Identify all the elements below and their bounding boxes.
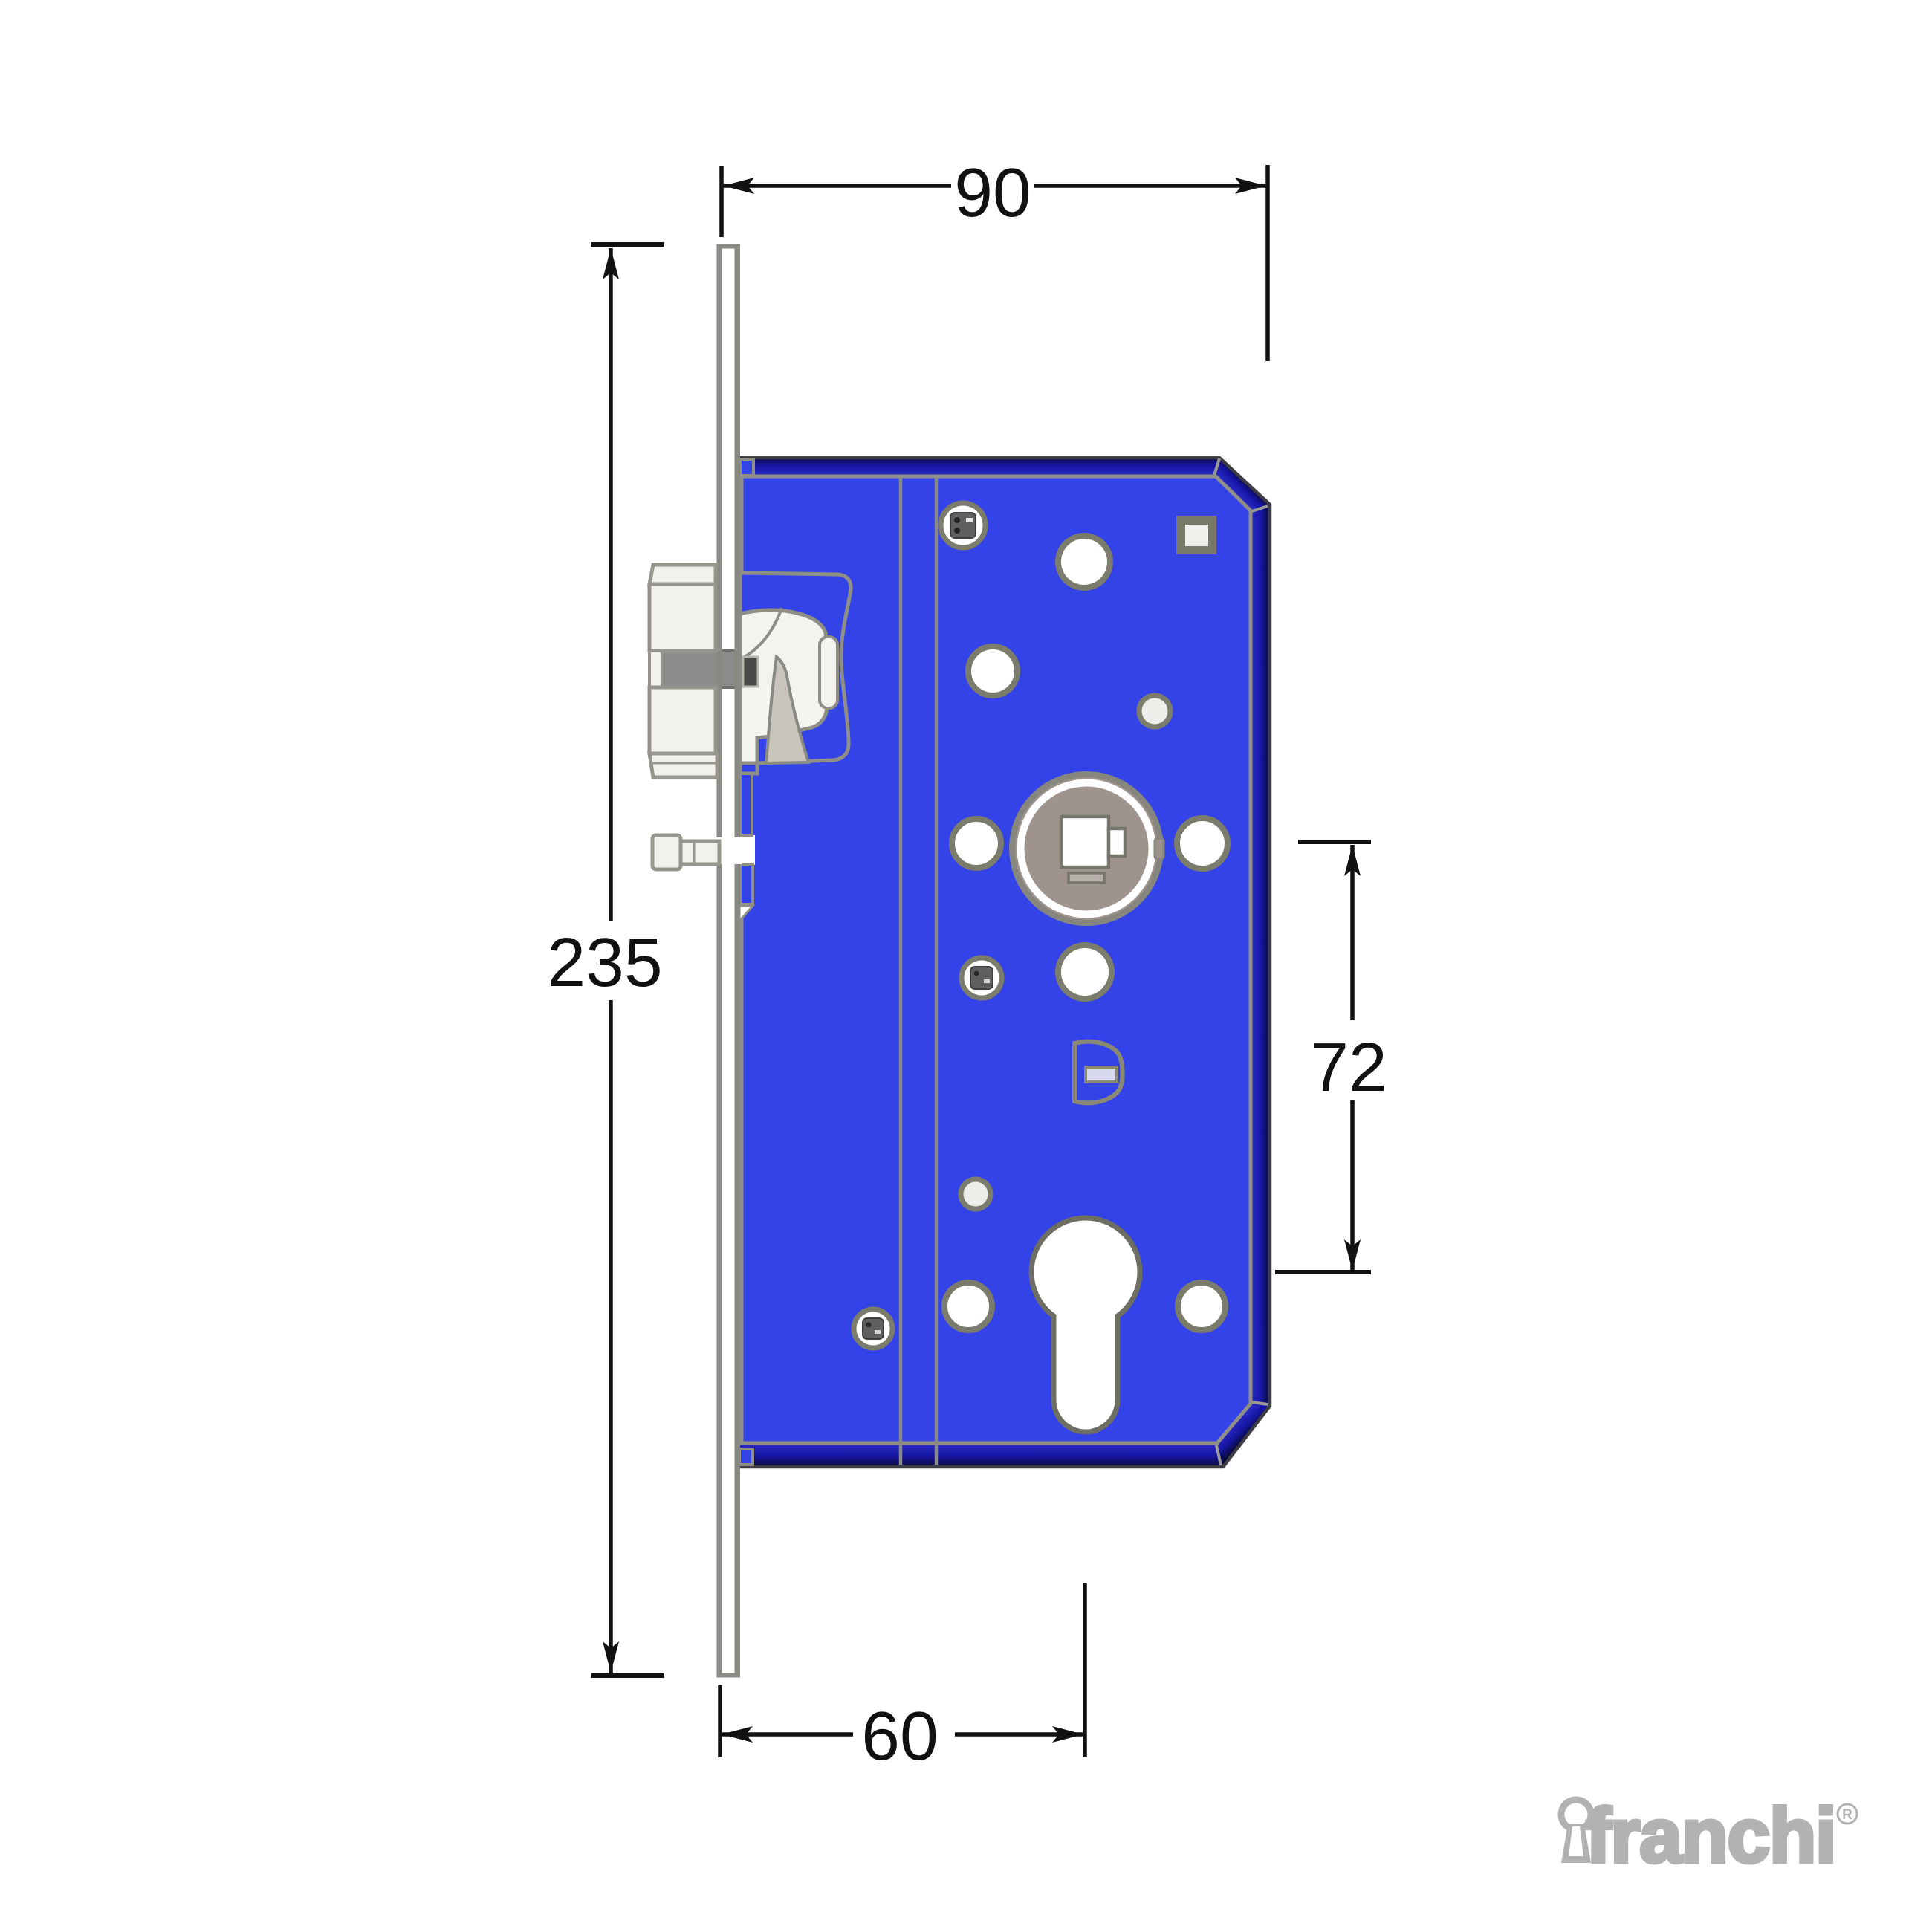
svg-text:90: 90 bbox=[954, 154, 1031, 231]
svg-text:R: R bbox=[1842, 1807, 1852, 1823]
svg-text:60: 60 bbox=[861, 1697, 938, 1774]
svg-text:235: 235 bbox=[547, 924, 662, 1001]
svg-text:72: 72 bbox=[1310, 1028, 1387, 1106]
svg-text:franchi: franchi bbox=[1586, 1793, 1835, 1879]
